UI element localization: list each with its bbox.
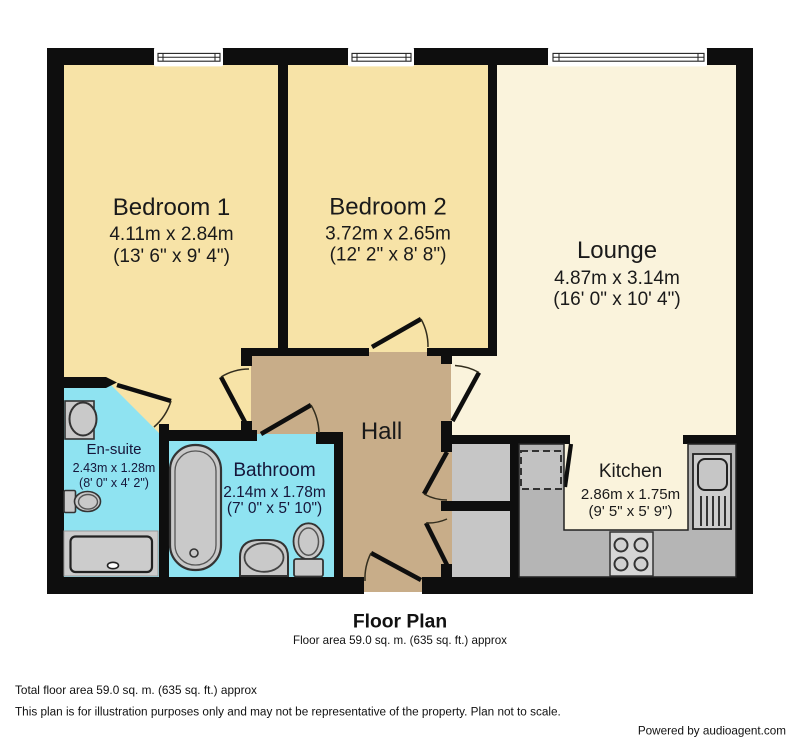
svg-text:(13' 6" x 9' 4"): (13' 6" x 9' 4") bbox=[113, 246, 230, 267]
svg-text:Total floor area 59.0 sq. m. (: Total floor area 59.0 sq. m. (635 sq. ft… bbox=[15, 683, 257, 697]
svg-text:Bedroom 2: Bedroom 2 bbox=[329, 194, 446, 221]
svg-text:Powered by audioagent.com: Powered by audioagent.com bbox=[638, 725, 786, 738]
svg-text:4.87m x 3.14m: 4.87m x 3.14m bbox=[554, 268, 680, 289]
svg-text:(9' 5" x 5' 9"): (9' 5" x 5' 9") bbox=[589, 503, 673, 520]
svg-text:(8' 0" x 4' 2"): (8' 0" x 4' 2") bbox=[79, 476, 149, 490]
svg-text:2.14m x 1.78m: 2.14m x 1.78m bbox=[223, 484, 326, 501]
svg-text:4.11m x 2.84m: 4.11m x 2.84m bbox=[109, 224, 233, 245]
svg-text:Bedroom 1: Bedroom 1 bbox=[113, 194, 230, 221]
svg-text:Floor area 59.0 sq. m. (635 sq: Floor area 59.0 sq. m. (635 sq. ft.) app… bbox=[293, 634, 507, 647]
svg-text:(12' 2" x 8' 8"): (12' 2" x 8' 8") bbox=[330, 245, 447, 266]
svg-text:Floor Plan: Floor Plan bbox=[353, 612, 447, 633]
svg-text:Bathroom: Bathroom bbox=[233, 460, 315, 481]
svg-text:Kitchen: Kitchen bbox=[599, 461, 662, 482]
svg-text:This plan is for illustration: This plan is for illustration purposes o… bbox=[15, 706, 561, 719]
svg-text:En-suite: En-suite bbox=[86, 441, 141, 458]
svg-text:(7' 0" x 5' 10"): (7' 0" x 5' 10") bbox=[227, 500, 322, 517]
svg-text:Hall: Hall bbox=[361, 418, 402, 445]
svg-text:Lounge: Lounge bbox=[577, 237, 657, 264]
svg-text:3.72m x 2.65m: 3.72m x 2.65m bbox=[325, 224, 451, 245]
svg-text:(16' 0" x 10' 4"): (16' 0" x 10' 4") bbox=[553, 289, 680, 310]
svg-text:2.43m x 1.28m: 2.43m x 1.28m bbox=[73, 461, 156, 475]
svg-text:2.86m x 1.75m: 2.86m x 1.75m bbox=[581, 486, 680, 503]
